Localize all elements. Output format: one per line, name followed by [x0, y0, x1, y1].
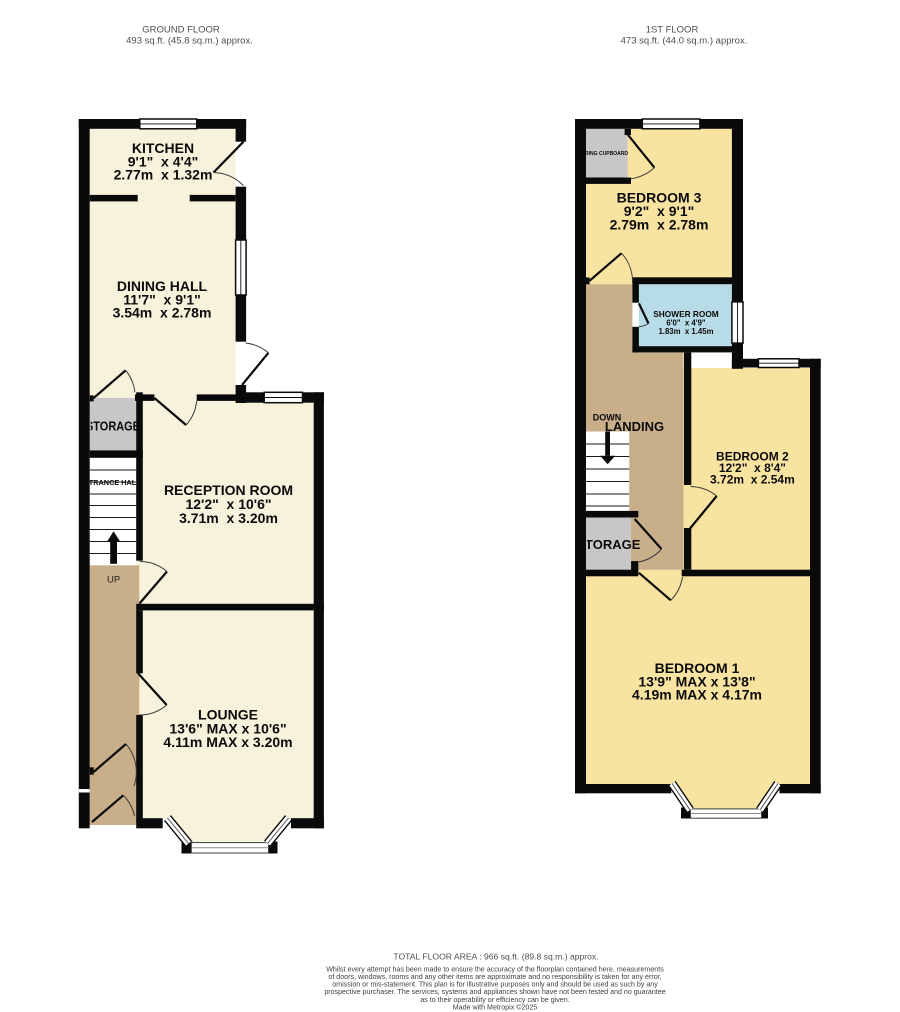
- svg-text:2.79m x 2.78m: 2.79m x 2.78m: [610, 217, 709, 233]
- svg-text:4.19m MAX x 4.17m: 4.19m MAX x 4.17m: [632, 687, 762, 703]
- svg-text:3.71m x 3.20m: 3.71m x 3.20m: [179, 510, 278, 526]
- svg-text:1ST FLOOR: 1ST FLOOR: [646, 25, 699, 36]
- svg-text:493 sq.ft. (45.8 sq.m.) approx: 493 sq.ft. (45.8 sq.m.) approx.: [126, 35, 253, 46]
- svg-text:473 sq.ft. (44.0 sq.m.) approx: 473 sq.ft. (44.0 sq.m.) approx.: [621, 35, 748, 46]
- svg-text:4.11m MAX x 3.20m: 4.11m MAX x 3.20m: [163, 734, 292, 750]
- svg-text:3.54m x 2.78m: 3.54m x 2.78m: [113, 305, 212, 321]
- svg-text:3.72m x 2.54m: 3.72m x 2.54m: [710, 472, 795, 486]
- svg-text:RING CUPBOARD: RING CUPBOARD: [585, 151, 628, 157]
- svg-text:1.83m x 1.45m: 1.83m x 1.45m: [658, 327, 713, 336]
- svg-text:UP: UP: [107, 574, 120, 585]
- svg-text:GROUND FLOOR: GROUND FLOOR: [142, 25, 220, 36]
- svg-text:Made with Metropix ©2025: Made with Metropix ©2025: [453, 1003, 538, 1011]
- svg-text:STORAGE: STORAGE: [86, 419, 140, 434]
- svg-text:TOTAL FLOOR AREA : 966 sq.ft.: TOTAL FLOOR AREA : 966 sq.ft. (89.8 sq.m…: [393, 951, 598, 961]
- svg-text:DOWN: DOWN: [593, 413, 622, 423]
- svg-text:2.77m x 1.32m: 2.77m x 1.32m: [114, 167, 213, 183]
